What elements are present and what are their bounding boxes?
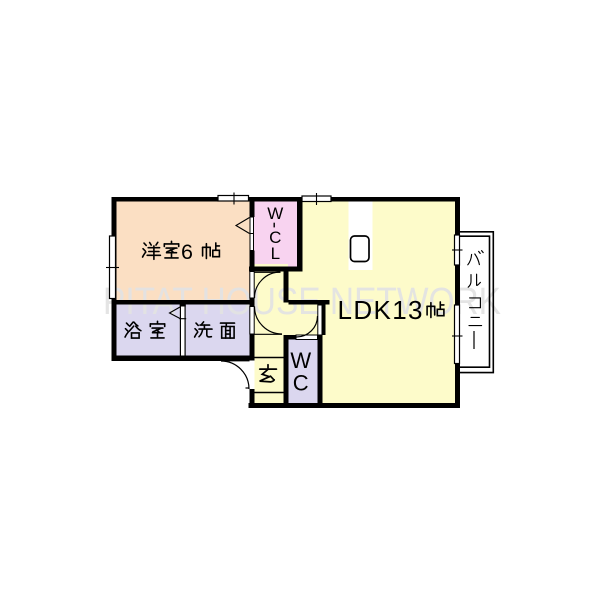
- svg-text:L: L: [271, 244, 280, 263]
- svg-text:LDK13: LDK13: [338, 295, 423, 325]
- svg-text:W: W: [290, 348, 311, 373]
- svg-text:6: 6: [181, 240, 193, 264]
- svg-text:C: C: [293, 371, 309, 396]
- svg-text:W: W: [267, 204, 283, 223]
